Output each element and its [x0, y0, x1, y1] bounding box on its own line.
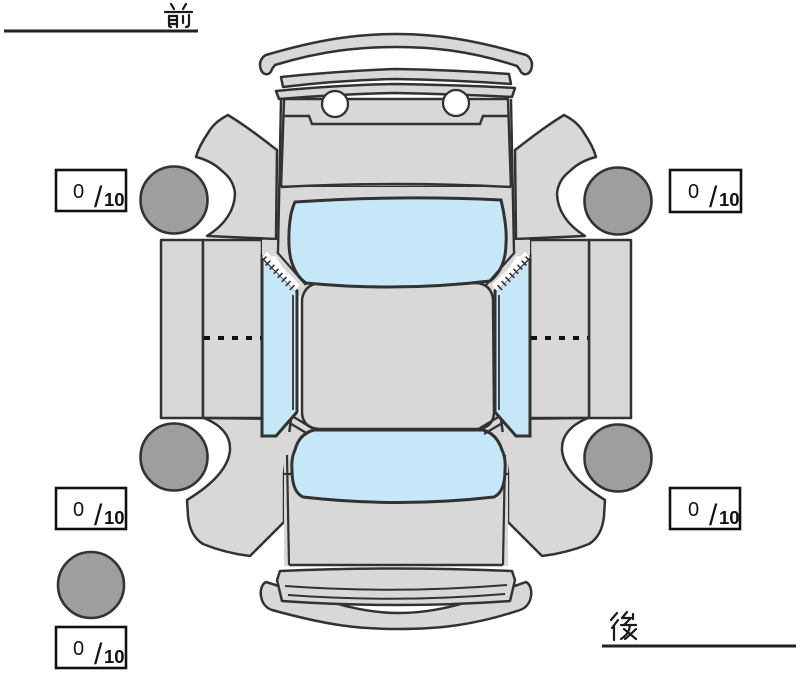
svg-text:0: 0 — [688, 499, 699, 521]
svg-text:/: / — [94, 499, 103, 532]
svg-text:0: 0 — [73, 181, 84, 203]
svg-text:0: 0 — [688, 181, 699, 203]
svg-text:0: 0 — [73, 499, 84, 521]
svg-text:/: / — [709, 181, 718, 214]
svg-text:10: 10 — [719, 189, 740, 210]
svg-text:/: / — [94, 638, 103, 671]
svg-text:10: 10 — [104, 189, 125, 210]
svg-text:/: / — [709, 499, 718, 532]
svg-text:10: 10 — [719, 507, 740, 528]
svg-text:/: / — [94, 181, 103, 214]
svg-text:10: 10 — [104, 646, 125, 667]
svg-text:0: 0 — [73, 638, 84, 660]
svg-text:10: 10 — [104, 507, 125, 528]
